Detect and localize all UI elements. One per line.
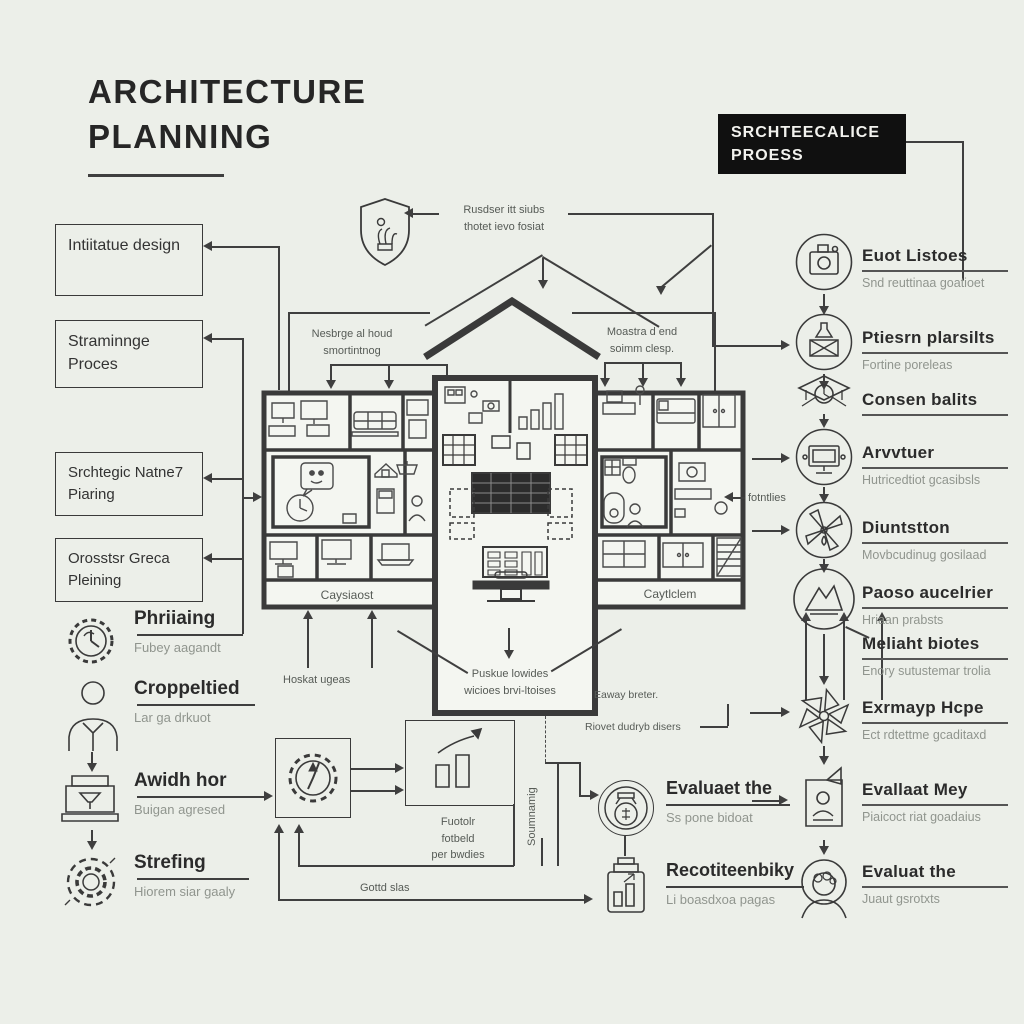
left-item-sub: Buigan agresed xyxy=(134,802,225,817)
label-line xyxy=(862,804,1008,806)
right-item-label: Meliaht biotes xyxy=(862,634,980,654)
arrowhead xyxy=(203,553,212,563)
chart-note: Fuotolr fotbeld per bwdies xyxy=(408,814,508,864)
label-line xyxy=(862,542,1008,544)
left-item-sub: Lar ga drkuot xyxy=(134,710,211,725)
connector xyxy=(906,141,963,143)
left-item-sub: Fubey aagandt xyxy=(134,640,221,655)
header-box-line2: PROESS xyxy=(731,144,893,167)
arrowhead xyxy=(294,824,304,833)
connector xyxy=(212,558,242,560)
machine-icon xyxy=(60,770,122,826)
arrowhead xyxy=(590,790,599,800)
shield-note-line1: Rusdser itt siubs xyxy=(440,202,568,219)
connector xyxy=(307,616,309,668)
label-line xyxy=(862,607,1008,609)
connector xyxy=(568,213,712,215)
recot-sub: Li boasdxoa pagas xyxy=(666,892,775,907)
connector xyxy=(661,245,712,288)
box-label: Intiitatue design xyxy=(68,237,180,254)
connector xyxy=(541,838,543,866)
riovet-label: Riovet dudryb disers xyxy=(585,720,681,736)
connector xyxy=(752,458,784,460)
box-label: Srchtegic Natne7 Piaring xyxy=(68,464,183,503)
gear-clock-icon xyxy=(62,612,120,670)
connector xyxy=(298,830,300,865)
label-line xyxy=(666,886,804,888)
recot-label: Recotiteenbiky xyxy=(666,860,794,881)
arrowhead xyxy=(724,492,733,502)
chart-note-line2: fotbeld xyxy=(408,831,508,848)
bottom-note-line2: wicioes brvi-ltoises xyxy=(440,683,580,700)
hoskat-label: Hoskat ugeas xyxy=(283,672,350,689)
gear-box xyxy=(275,738,351,818)
growth-chart-icon xyxy=(406,721,514,805)
connector xyxy=(278,899,586,901)
gear-badge-icon xyxy=(60,852,122,912)
right-item-label: Ptiesrn plarsilts xyxy=(862,328,995,348)
connector xyxy=(557,762,559,866)
person-halo-icon xyxy=(794,850,854,922)
money-circle-icon xyxy=(598,780,654,836)
left-item-sub: Hiorem siar gaaly xyxy=(134,884,235,899)
right-item-label: Paoso aucelrier xyxy=(862,583,993,603)
arrowhead xyxy=(274,824,284,833)
arrowhead xyxy=(504,650,514,659)
arrowhead xyxy=(203,473,212,483)
right-item-label: Arvvtuer xyxy=(862,443,934,463)
jar-chart-icon xyxy=(600,856,652,916)
connector xyxy=(508,628,510,652)
right-item-sub: Fortine poreleas xyxy=(862,358,952,372)
arrowhead xyxy=(264,791,273,801)
connector xyxy=(212,478,242,480)
arrowhead xyxy=(87,841,97,850)
right-item-label: Exrmayp Hcpe xyxy=(862,698,984,718)
connector xyxy=(413,213,439,215)
arrowhead xyxy=(203,241,212,251)
right-item-sub: Ect rdtettme gcaditaxd xyxy=(862,728,986,742)
connector xyxy=(727,704,729,726)
connector xyxy=(242,338,244,634)
soumnamig-label: Soumnamig xyxy=(524,787,541,846)
label-line xyxy=(862,414,1008,416)
right-footer-label: Caytlclem xyxy=(625,585,715,603)
connector xyxy=(750,712,784,714)
connector xyxy=(278,830,280,900)
shield-note: Rusdser itt siubs thotet ievo fosiat xyxy=(440,202,568,235)
left-item-label: Strefing xyxy=(134,852,206,874)
left-footer-label: Caysiaost xyxy=(302,586,392,604)
label-line xyxy=(137,634,243,636)
connector xyxy=(752,530,784,532)
certificate-icon xyxy=(794,762,854,838)
pinwheel-icon xyxy=(794,684,854,746)
arrowhead xyxy=(203,333,212,343)
connector xyxy=(371,616,373,668)
arrowhead xyxy=(367,610,377,619)
connector xyxy=(733,497,745,499)
label-line xyxy=(862,886,1008,888)
box-straminge-proces: Straminnge Proces xyxy=(55,320,203,388)
page-title: ARCHITECTURE PLANNING xyxy=(88,70,366,159)
connector xyxy=(298,865,514,867)
box-label: Straminnge Proces xyxy=(68,333,150,373)
connector xyxy=(712,345,784,347)
shield-note-line2: thotet ievo fosiat xyxy=(440,219,568,236)
left-item-label: Awidh hor xyxy=(134,770,227,792)
process-header-box: SRCHTEECALICE PROESS xyxy=(718,114,906,174)
roof xyxy=(425,301,599,357)
grad-cap-icon xyxy=(794,370,854,420)
arrowhead xyxy=(395,763,404,773)
connector xyxy=(752,800,782,802)
right-wing xyxy=(595,393,743,607)
person-icon xyxy=(66,678,120,752)
right-item-sub: Movbcudinug gosilaad xyxy=(862,548,986,562)
dashed-connector xyxy=(545,716,546,762)
right-item-sub: Juaut gsrotxts xyxy=(862,892,940,906)
header-box-line1: SRCHTEECALICE xyxy=(731,121,893,144)
box-srchtegic: Srchtegic Natne7 Piaring xyxy=(55,452,203,516)
right-item-sub: Enory sutustemar trolia xyxy=(862,664,991,678)
title-line1: ARCHITECTURE xyxy=(88,70,366,115)
mountain-circle-icon xyxy=(792,566,856,632)
box-label: Orosstsr Greca Pleining xyxy=(68,550,170,589)
connector xyxy=(700,726,728,728)
right-item-label: Consen balits xyxy=(862,390,977,410)
gear-compass-icon xyxy=(276,739,350,817)
connector xyxy=(513,804,515,866)
chart-box xyxy=(405,720,515,806)
left-item-label: Phriiaing xyxy=(134,608,215,630)
floor-plan xyxy=(255,293,747,723)
connector xyxy=(542,258,544,282)
label-line xyxy=(137,878,249,880)
arrowhead xyxy=(584,894,593,904)
box-orosstsr: Orosstsr Greca Pleining xyxy=(55,538,203,602)
label-line xyxy=(137,704,255,706)
fotntles-label: fotntlies xyxy=(748,490,786,507)
connector xyxy=(624,836,626,856)
connector xyxy=(212,338,242,340)
right-item-sub: Hutricedtiot gcasibsls xyxy=(862,473,980,487)
connector xyxy=(545,762,579,764)
arrowhead xyxy=(395,785,404,795)
left-item-label: Croppeltied xyxy=(134,678,240,700)
title-line2: PLANNING xyxy=(88,115,366,160)
arrowhead xyxy=(303,610,313,619)
arrowhead xyxy=(404,208,413,218)
eaway-label: Eaway breter. xyxy=(594,688,658,704)
arrowhead xyxy=(781,453,790,463)
windmill-circle-icon xyxy=(794,500,854,560)
connector xyxy=(351,768,397,770)
flask-circle-icon xyxy=(794,312,854,372)
bottom-note-line1: Puskue lowides xyxy=(440,666,580,683)
label-line xyxy=(862,658,1008,660)
label-line xyxy=(862,467,1008,469)
box-initiative-design: Intiitatue design xyxy=(55,224,203,296)
title-underline xyxy=(88,174,224,177)
label-line xyxy=(666,804,790,806)
label-line xyxy=(862,722,1008,724)
label-line xyxy=(137,796,265,798)
arrowhead xyxy=(781,707,790,717)
bottom-note: Puskue lowides wicioes brvi-ltoises xyxy=(440,666,580,699)
connector xyxy=(823,634,825,680)
connector xyxy=(351,790,397,792)
arrowhead xyxy=(538,280,548,289)
right-item-sub: Hriaan prabsts xyxy=(862,613,943,627)
right-item-label: Evallaat Mey xyxy=(862,780,968,800)
monitor-circle-icon xyxy=(794,427,854,487)
right-item-label: Diuntstton xyxy=(862,518,950,538)
chart-note-line3: per bwdies xyxy=(408,847,508,864)
right-item-label: Euot Listoes xyxy=(862,246,968,266)
label-line xyxy=(862,352,1008,354)
label-line xyxy=(862,270,1008,272)
connector xyxy=(212,246,278,248)
right-item-label: Evaluat the xyxy=(862,862,956,882)
arrowhead xyxy=(779,795,788,805)
right-item-sub: Snd reuttinaa goatioet xyxy=(862,276,984,290)
chart-note-line1: Fuotolr xyxy=(408,814,508,831)
architecture-planning-diagram: ARCHITECTURE PLANNING SRCHTEECALICE PROE… xyxy=(0,0,1024,1024)
right-item-sub: Piaicoct riat goadaius xyxy=(862,810,981,824)
connector xyxy=(579,762,581,795)
evaluate-label: Evaluaet the xyxy=(666,778,772,799)
arrowhead xyxy=(781,340,790,350)
camera-circle-icon xyxy=(794,232,854,292)
arrowhead xyxy=(781,525,790,535)
center-tower xyxy=(435,378,595,713)
gottd-label: Gottd slas xyxy=(360,880,410,897)
table xyxy=(473,581,549,589)
evaluate-sub: Ss pone bidoat xyxy=(666,810,753,825)
